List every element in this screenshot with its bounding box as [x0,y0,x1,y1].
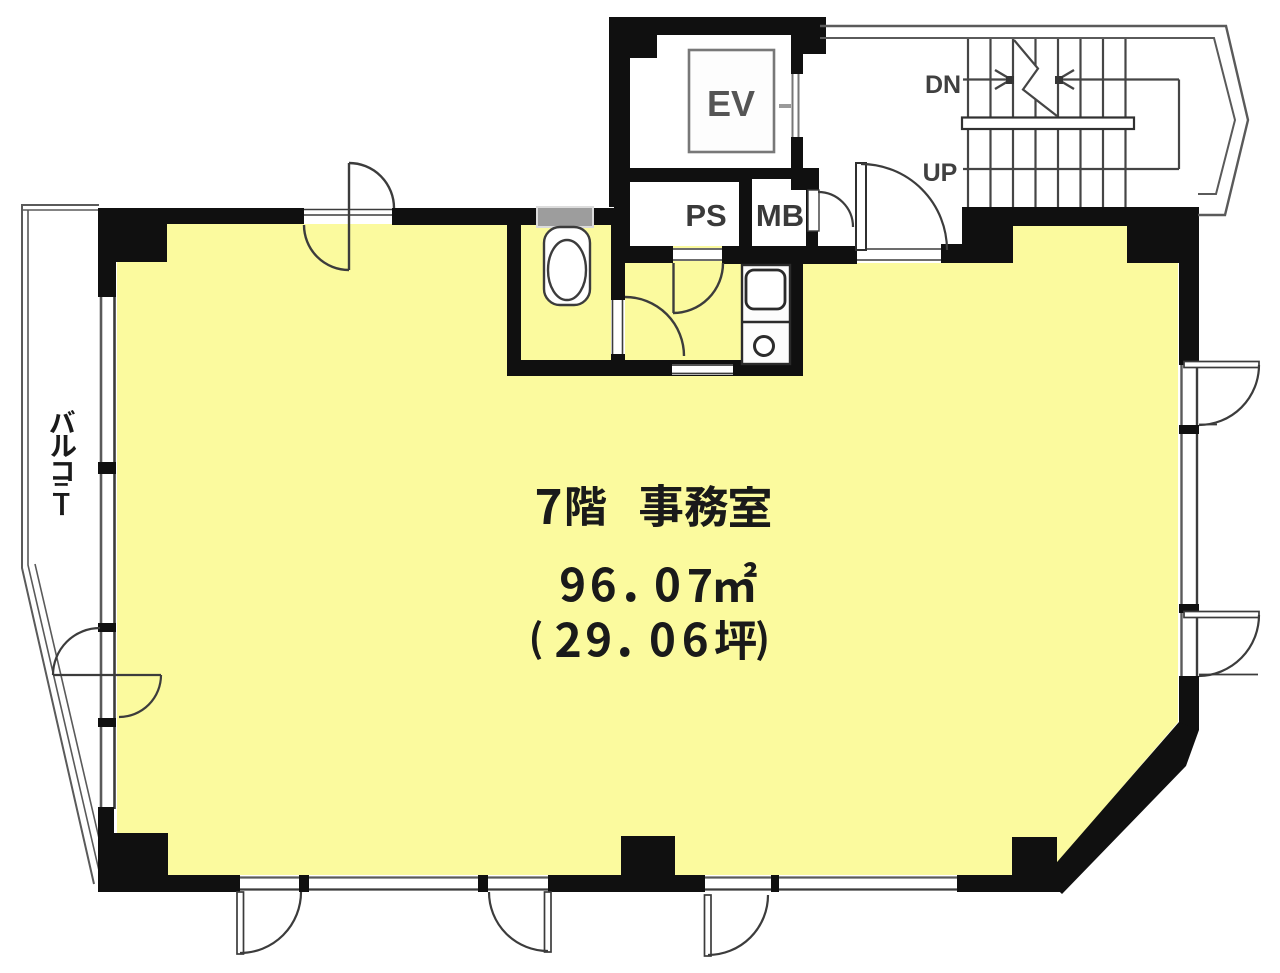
svg-text:MB: MB [756,198,804,233]
svg-text:PS: PS [685,198,726,233]
svg-text:UP: UP [923,159,958,187]
svg-text:DN: DN [925,71,961,99]
svg-text:EV: EV [707,83,755,124]
